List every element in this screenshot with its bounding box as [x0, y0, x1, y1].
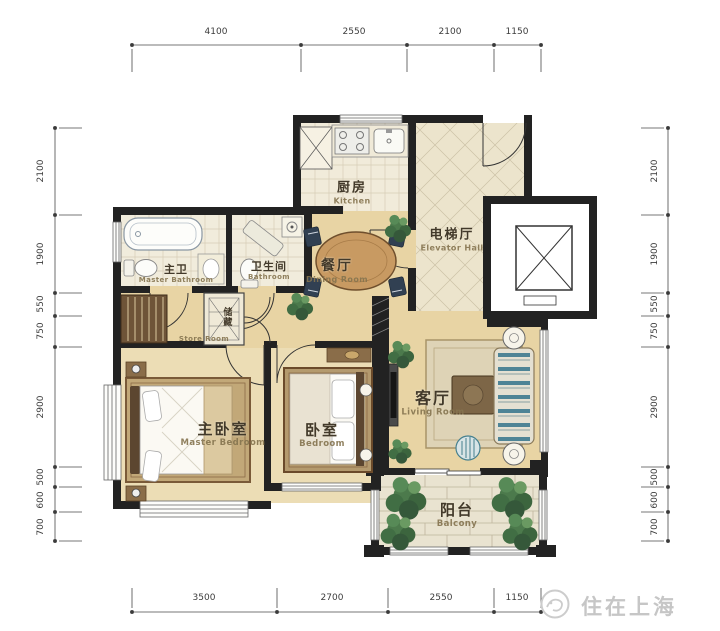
- dim-top-1: 4100: [205, 27, 228, 37]
- floorplan-canvas: 厨房 Kitchen 电梯厅 Elevator Hall 餐厅 Dining R…: [0, 0, 720, 631]
- dim-left-8: 700: [36, 518, 46, 535]
- dim-top-4: 1150: [506, 27, 529, 37]
- wardrobe: [121, 295, 167, 343]
- dim-right-8: 700: [650, 518, 660, 535]
- master-bedroom-label-zh: 主卧室: [181, 420, 266, 438]
- bedroom-label-zh: 卧室: [299, 421, 345, 439]
- bedroom-label: 卧室 Bedroom: [299, 421, 345, 449]
- storage-label-en-wrap: Store Room: [179, 335, 229, 343]
- bedroom-label-en: Bedroom: [299, 439, 345, 449]
- dim-bottom-2: 2700: [321, 593, 344, 603]
- master-bath-label-en: Master Bathroom: [139, 276, 214, 284]
- kitchen-label-en: Kitchen: [333, 196, 370, 206]
- dim-right-4: 750: [650, 322, 660, 339]
- dim-bottom-1: 3500: [193, 593, 216, 603]
- dim-left-6: 500: [36, 468, 46, 485]
- living-room-label: 客厅 Living Room: [401, 388, 464, 417]
- floor-plan-drawing: [0, 0, 720, 631]
- dining-label: 餐厅 Dining Room: [306, 258, 368, 284]
- elevator-hall-label-zh: 电梯厅: [420, 227, 483, 243]
- dim-left-1: 2100: [36, 160, 46, 183]
- bathroom-label-en: Bathroom: [248, 273, 290, 281]
- living-room-label-zh: 客厅: [401, 388, 464, 407]
- watermark: 住在上海: [538, 587, 677, 625]
- master-bedroom-label-en: Master Bedroom: [181, 438, 266, 448]
- master-bath-label-zh: 主卫: [139, 263, 214, 276]
- storage-label-en: Store Room: [179, 335, 229, 343]
- master-bath-label: 主卫 Master Bathroom: [139, 263, 214, 285]
- dim-left-4: 750: [36, 322, 46, 339]
- dim-left-5: 2900: [36, 396, 46, 419]
- living-room-label-en: Living Room: [401, 408, 464, 418]
- master-bedroom-label: 主卧室 Master Bedroom: [181, 420, 266, 448]
- dim-top-3: 2100: [439, 27, 462, 37]
- balcony-label-zh: 阳台: [437, 501, 477, 519]
- dim-right-1: 2100: [650, 160, 660, 183]
- dim-bottom-3: 2550: [430, 593, 453, 603]
- dim-right-3: 550: [650, 295, 660, 312]
- dim-right-2: 1900: [650, 243, 660, 266]
- storage-label: 储藏: [221, 307, 232, 327]
- dim-right-6: 500: [650, 468, 660, 485]
- watermark-text: 住在上海: [581, 591, 677, 621]
- dim-left-3: 550: [36, 295, 46, 312]
- balcony-label-en: Balcony: [437, 519, 477, 529]
- dining-label-en: Dining Room: [306, 275, 368, 285]
- storage-label-zh: 储藏: [221, 307, 232, 327]
- kitchen-label-zh: 厨房: [333, 180, 370, 196]
- dim-right-5: 2900: [650, 396, 660, 419]
- elevator-hall-label-en: Elevator Hall: [420, 243, 483, 253]
- kitchen-label: 厨房 Kitchen: [333, 180, 370, 205]
- bathroom-label-zh: 卫生间: [248, 260, 290, 273]
- watermark-logo-icon: [538, 587, 572, 625]
- dim-right-7: 600: [650, 491, 660, 508]
- dim-top-2: 2550: [343, 27, 366, 37]
- balcony-label: 阳台 Balcony: [437, 501, 477, 529]
- dim-bottom-4: 1150: [506, 593, 529, 603]
- bathroom-label: 卫生间 Bathroom: [248, 260, 290, 282]
- elevator-hall-label: 电梯厅 Elevator Hall: [420, 227, 483, 252]
- dining-label-zh: 餐厅: [306, 258, 368, 275]
- dim-left-2: 1900: [36, 243, 46, 266]
- dim-left-7: 600: [36, 491, 46, 508]
